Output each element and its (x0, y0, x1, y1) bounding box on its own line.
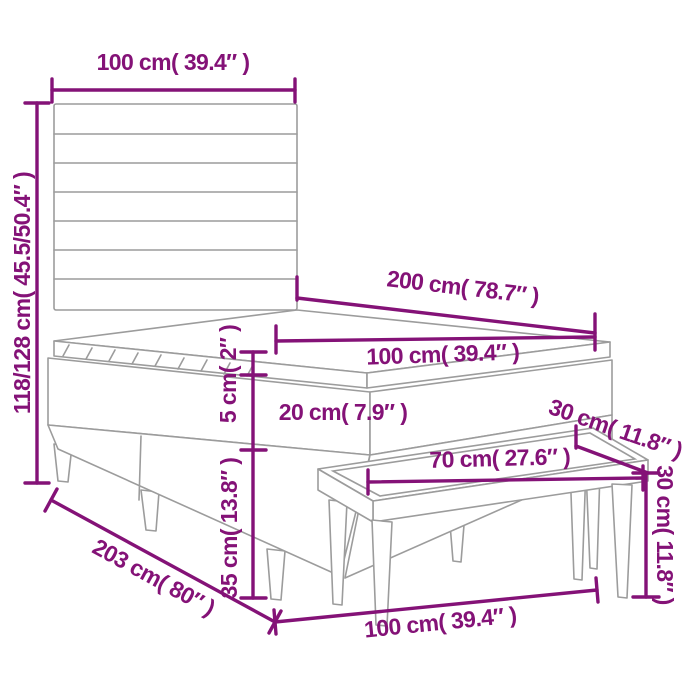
bench-leg-front (612, 484, 632, 598)
dim-bed-length-label: 200 cm( 78.7″ ) (385, 265, 540, 309)
bed-leg (141, 490, 159, 531)
dim-bed-total-length-label: 203 cm( 80″ ) (88, 533, 219, 620)
bed-leg (267, 549, 285, 600)
product-dimension-diagram: 100 cm( 39.4″ ) 118/128 cm( 45.5/50.4″ )… (0, 0, 700, 700)
dim-headboard-height: 118/128 cm( 45.5/50.4″ ) (9, 103, 49, 483)
dim-mattress-width-label: 100 cm( 39.4″ ) (366, 338, 520, 369)
dim-bench-height-label: 30 cm( 11.8″ ) (652, 465, 678, 604)
dim-bench-height: 30 cm( 11.8″ ) (633, 465, 678, 604)
diagram-canvas: 100 cm( 39.4″ ) 118/128 cm( 45.5/50.4″ )… (0, 0, 700, 700)
dim-headboard-width-label: 100 cm( 39.4″ ) (97, 49, 250, 75)
dim-topper-height-label: 5 cm( 2″ ) (215, 325, 241, 423)
dim-base-height-label: 35 cm( 13.8″ ) (216, 458, 242, 599)
dim-headboard-width: 100 cm( 39.4″ ) (52, 49, 295, 102)
dim-bed-width-bottom: 100 cm( 39.4″ ) (274, 578, 598, 643)
dim-headboard-height-label: 118/128 cm( 45.5/50.4″ ) (9, 172, 35, 414)
dim-bench-length-label: 70 cm( 27.6″ ) (429, 443, 570, 473)
dim-mattress-height-label: 20 cm( 7.9″ ) (279, 399, 408, 425)
bench-leg-back (329, 500, 347, 605)
